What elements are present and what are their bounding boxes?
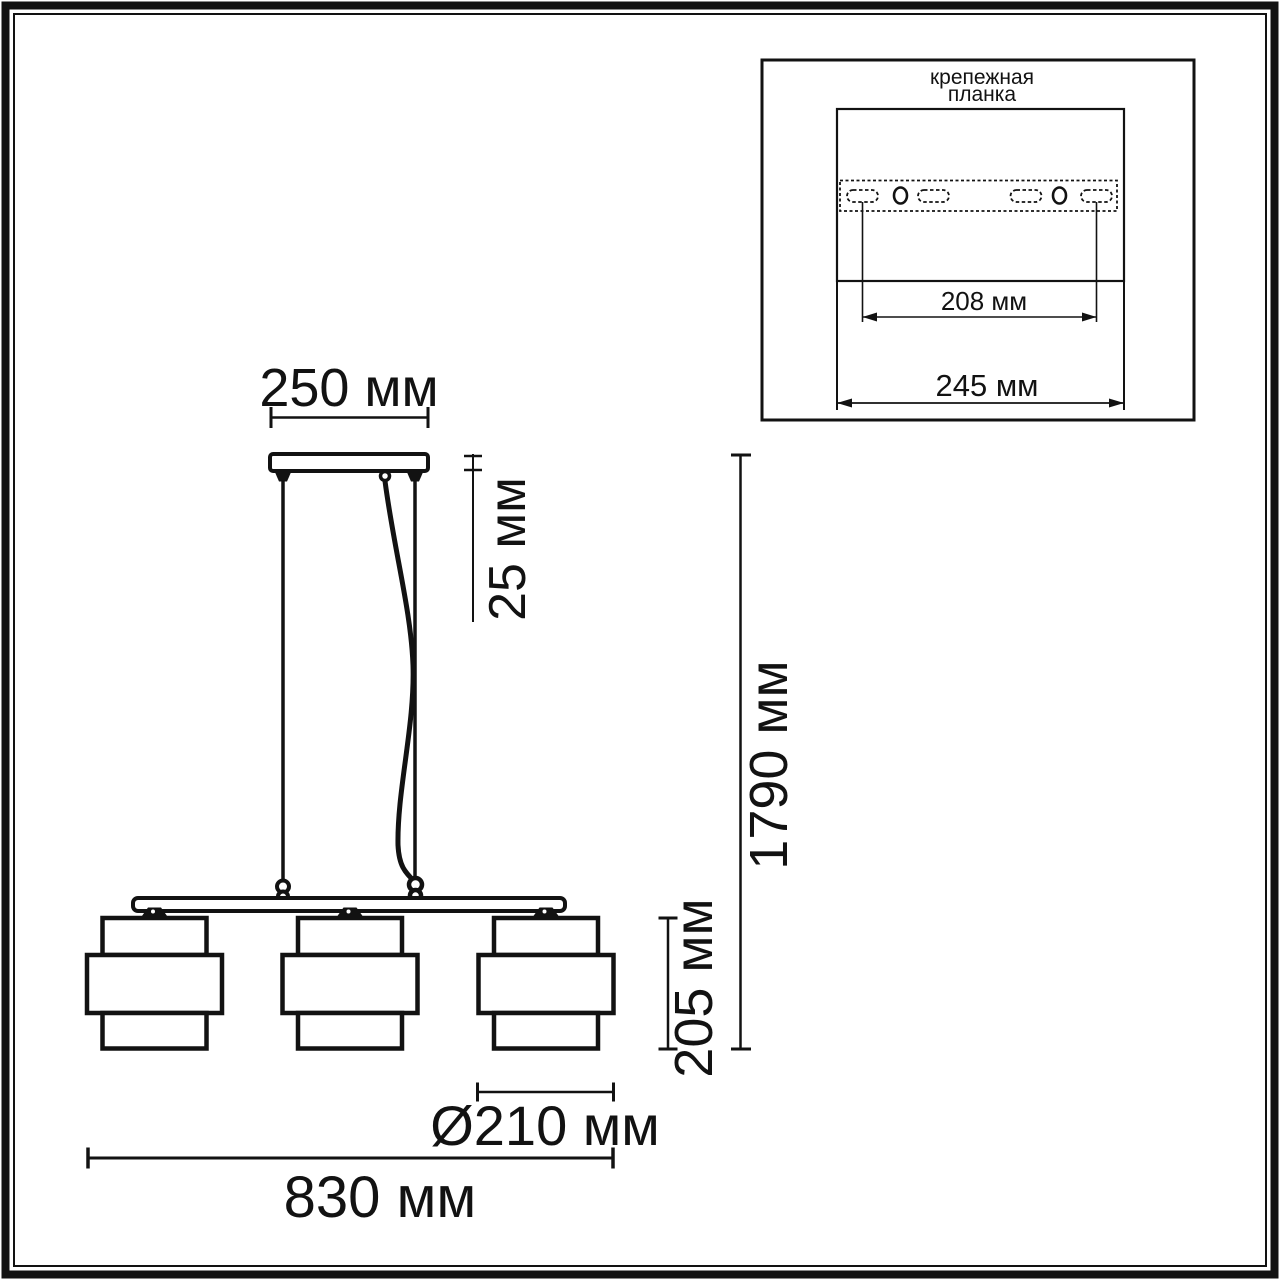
shade-bottom-tier: [298, 1013, 402, 1049]
dim-label-canopy-thickness: 25 мм: [479, 477, 537, 621]
mounting-plate-inset: крепежная планка 208 мм 245 мм: [762, 60, 1194, 420]
shade-top-tier: [494, 918, 598, 955]
inset-title-line2: планка: [948, 83, 1017, 106]
canopy-rod-flare-left: [274, 470, 292, 482]
power-cable: [385, 481, 414, 881]
shade-mount-pin-right: [542, 909, 548, 915]
dim-hole-spacing: 208 мм: [863, 202, 1097, 322]
dim-fixture-length: 830 мм: [88, 1148, 613, 1231]
bracket-strip: [840, 181, 1117, 212]
lampshade-right: [479, 918, 614, 1049]
shade-middle-tier: [87, 955, 222, 1013]
dim-label-hole-spacing: 208 мм: [941, 286, 1027, 316]
lampshade-center: [283, 918, 418, 1049]
page-border-inner: [14, 14, 1266, 1266]
shade-mount-pin-center: [346, 909, 352, 915]
page-border-outer: [6, 6, 1275, 1275]
dim-arrowhead-left: [837, 399, 852, 408]
dim-label-shade-diameter: Ø210 мм: [430, 1094, 660, 1157]
shade-top-tier: [298, 918, 402, 955]
dim-label-overall-height: 1790 мм: [739, 660, 799, 869]
bracket-hole-left: [894, 188, 907, 204]
bracket-slot-3: [1011, 190, 1042, 202]
dim-label-plate-length: 245 мм: [936, 368, 1039, 403]
dim-shade-diameter: Ø210 мм: [430, 1083, 660, 1158]
canopy-rod-flare-right: [406, 470, 424, 482]
dim-label-shade-height: 205 мм: [664, 898, 724, 1077]
shade-bottom-tier: [103, 1013, 207, 1049]
shade-mount-pin-left: [150, 909, 156, 915]
inset-box: [762, 60, 1194, 420]
dim-label-fixture-length: 830 мм: [284, 1165, 477, 1230]
dim-shade-height: 205 мм: [659, 898, 725, 1077]
dim-canopy-width: 250 мм: [259, 358, 438, 428]
bracket-slot-1: [847, 190, 878, 202]
cable-anchor: [381, 472, 390, 481]
dim-canopy-thickness: 25 мм: [464, 454, 537, 622]
page-border: [6, 6, 1275, 1275]
pendant-light-drawing: 250 мм 25 мм 1790 мм 205 мм: [87, 358, 799, 1230]
dim-arrowhead-left: [863, 313, 878, 322]
bracket-slot-2: [918, 190, 949, 202]
bracket-slot-4: [1081, 190, 1112, 202]
dim-overall-height: 1790 мм: [731, 455, 799, 1049]
canopy: [270, 454, 428, 471]
shade-top-tier: [103, 918, 207, 955]
shade-bottom-tier: [494, 1013, 598, 1049]
suspension: [277, 472, 422, 902]
dim-arrowhead-right: [1082, 313, 1097, 322]
shade-middle-tier: [283, 955, 418, 1013]
shade-middle-tier: [479, 955, 614, 1013]
lampshade-left: [87, 918, 222, 1049]
dim-label-canopy-width: 250 мм: [259, 358, 438, 418]
bracket-hole-right: [1053, 188, 1066, 204]
dimension-diagram: 250 мм 25 мм 1790 мм 205 мм: [0, 0, 1280, 1280]
dim-arrowhead-right: [1109, 399, 1124, 408]
